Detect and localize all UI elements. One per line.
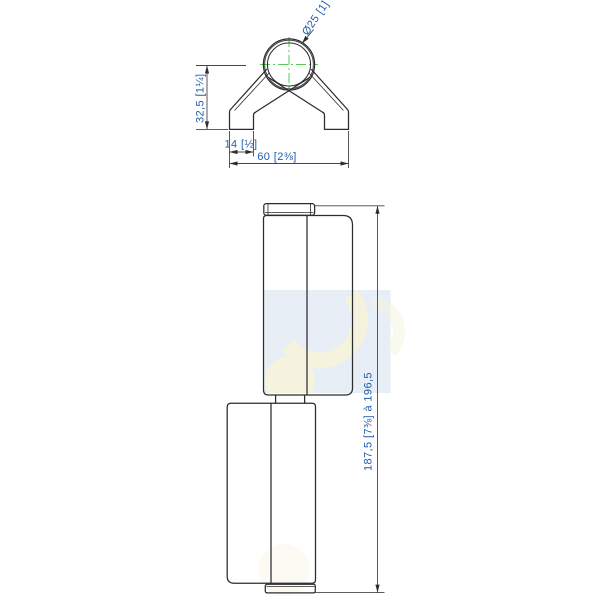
drawing-page: Ø25 [1] 32,5 [1¼] 14 [½] 60 [2⅜] [0, 0, 600, 600]
dimension-label: 187,5 [7⅜] à 196,5 [363, 372, 375, 471]
dimension-label: 60 [2⅜] [257, 151, 297, 163]
dimension-label: 14 [½] [225, 139, 258, 151]
dimension-label: 32,5 [1¼] [195, 74, 207, 123]
technical-drawing: Ø25 [1] 32,5 [1¼] 14 [½] 60 [2⅜] [0, 0, 600, 600]
